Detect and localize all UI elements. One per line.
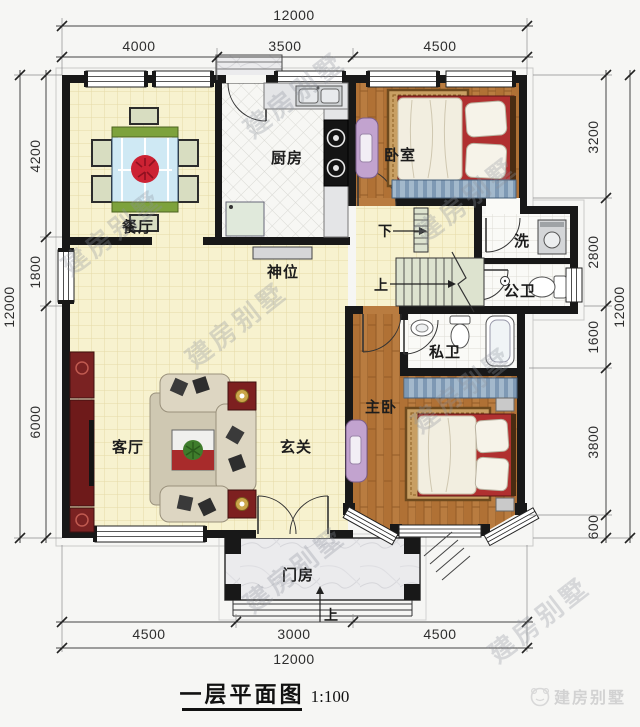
plan-title: 一层平面图 xyxy=(179,682,304,707)
dim-left-3: 6000 xyxy=(27,405,43,438)
dining-chair xyxy=(178,140,198,166)
stair-up-flight xyxy=(396,258,484,306)
dining-chair xyxy=(92,140,112,166)
tv-cabinet xyxy=(70,352,94,532)
dim-top-1: 4000 xyxy=(122,38,155,54)
plan-scale: 1:100 xyxy=(311,687,350,706)
nightstand xyxy=(496,398,514,411)
brand-name: 建房别墅 xyxy=(554,688,626,707)
dim-bottom-1: 4500 xyxy=(132,626,165,642)
dim-left-1: 4200 xyxy=(27,139,43,172)
brand-logo: 建房别墅 xyxy=(532,688,627,707)
label-living: 客厅 xyxy=(111,438,144,456)
floor-plan-page: 12000 4000 3500 4500 4200 1800 6000 1200… xyxy=(0,0,640,727)
bedroom-window-1 xyxy=(366,71,440,87)
toilet-tank xyxy=(450,316,470,324)
label-laundry: 洗 xyxy=(514,232,530,250)
dim-top-total: 12000 xyxy=(273,7,314,23)
dining-window-2 xyxy=(152,71,214,87)
public-bath-window xyxy=(566,268,582,302)
dim-right-4: 3800 xyxy=(585,425,601,458)
brand-icon xyxy=(532,689,549,706)
dim-right-1: 3200 xyxy=(585,120,601,153)
floor-plan-drawing: 12000 4000 3500 4500 4200 1800 6000 1200… xyxy=(0,0,640,727)
coffee-table xyxy=(172,430,214,470)
shrine-table xyxy=(253,247,312,259)
label-public-bath: 公卫 xyxy=(504,283,536,300)
watermark-text: 建房别墅 xyxy=(484,572,596,669)
side-table-lamp-1 xyxy=(228,382,256,410)
dim-left-total: 12000 xyxy=(1,286,17,327)
stove xyxy=(324,120,348,186)
nightstand xyxy=(496,498,514,511)
label-foyer: 玄关 xyxy=(280,438,312,456)
dining-window-1 xyxy=(84,71,148,87)
dining-chair xyxy=(178,176,198,202)
side-steps xyxy=(424,532,470,580)
dim-bottom-2: 3000 xyxy=(277,626,310,642)
bay-window-bottom xyxy=(399,525,481,537)
label-master-bedroom: 主卧 xyxy=(365,398,397,416)
laundry-fixtures xyxy=(538,220,566,254)
dim-right-5: 600 xyxy=(585,515,601,540)
toilet-tank xyxy=(554,276,566,298)
title-block: 一层平面图 1:100 xyxy=(179,682,349,711)
dim-top-3: 4500 xyxy=(423,38,456,54)
label-bedroom: 卧室 xyxy=(384,146,416,164)
label-private-bath: 私卫 xyxy=(428,344,461,361)
dim-right-2: 2800 xyxy=(585,235,601,268)
dining-chair xyxy=(92,176,112,202)
dim-bottom-3: 4500 xyxy=(423,626,456,642)
label-entry-up: 上 xyxy=(324,608,338,624)
label-stair-down: 下 xyxy=(378,224,392,240)
dim-right-total: 12000 xyxy=(611,286,627,327)
title-underline xyxy=(182,708,302,711)
side-table-lamp-2 xyxy=(228,490,256,518)
dim-left-2: 1800 xyxy=(27,255,43,288)
dim-right-3: 1600 xyxy=(585,320,601,353)
dimensions-top: 12000 4000 3500 4500 xyxy=(56,7,533,80)
bedroom-window-2 xyxy=(446,71,516,87)
dining-chair xyxy=(130,108,158,124)
dimensions-left: 4200 1800 6000 12000 xyxy=(1,70,62,543)
living-window xyxy=(93,526,207,542)
label-kitchen: 厨房 xyxy=(271,149,303,167)
dim-top-2: 3500 xyxy=(268,38,301,54)
dim-bottom-total: 12000 xyxy=(273,651,314,667)
label-stair-up: 上 xyxy=(374,278,388,294)
